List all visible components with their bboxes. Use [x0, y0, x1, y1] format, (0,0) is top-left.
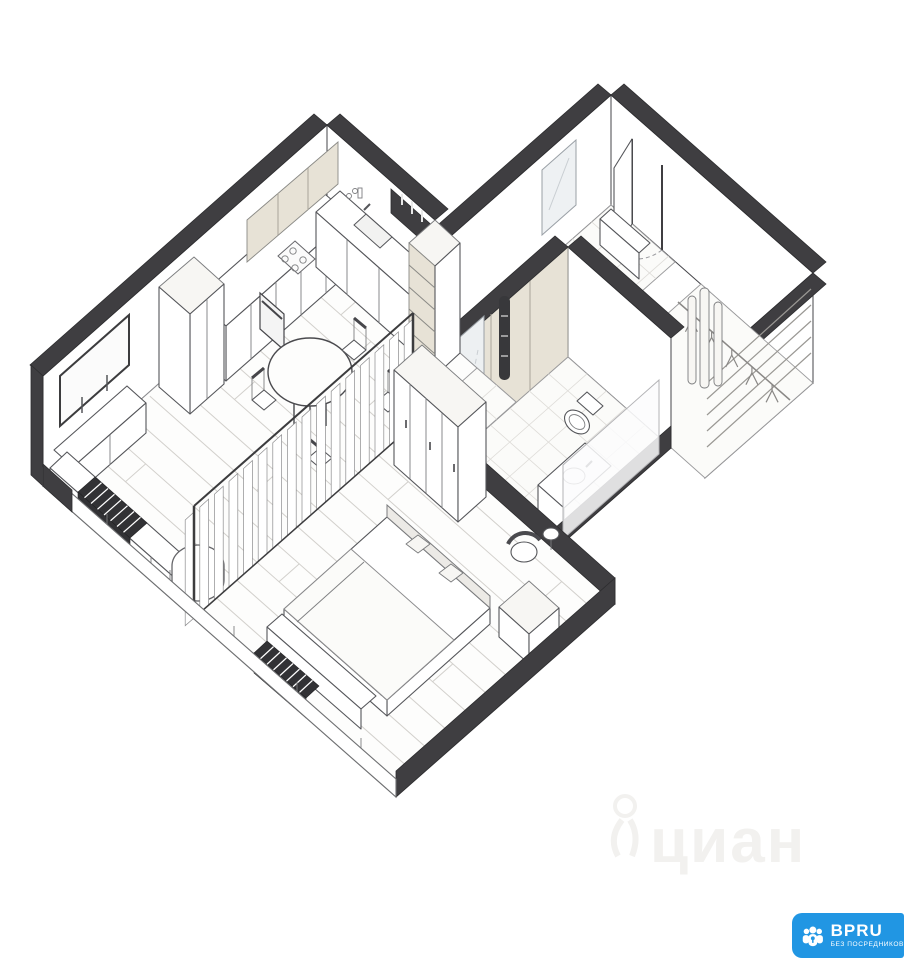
cian-watermark: циан: [614, 796, 806, 876]
apartment-3d-floor-plan: циан: [0, 0, 904, 960]
logo-title: BPRU: [831, 922, 904, 939]
logo-people-icon: [800, 923, 826, 949]
watermark-figure-icon: [614, 820, 636, 856]
tall-cabinet: [159, 257, 224, 414]
watermark-text: циан: [650, 807, 806, 876]
side-table: [543, 528, 559, 540]
towel-radiator: [499, 296, 510, 380]
bpru-logo-badge[interactable]: BPRU БЕЗ ПОСРЕДНИКОВ: [792, 913, 904, 958]
floor-plan: [30, 84, 826, 797]
watermark-figure-icon: [615, 796, 635, 816]
logo-subtitle: БЕЗ ПОСРЕДНИКОВ: [831, 942, 904, 949]
closet-rolls: [688, 288, 722, 388]
